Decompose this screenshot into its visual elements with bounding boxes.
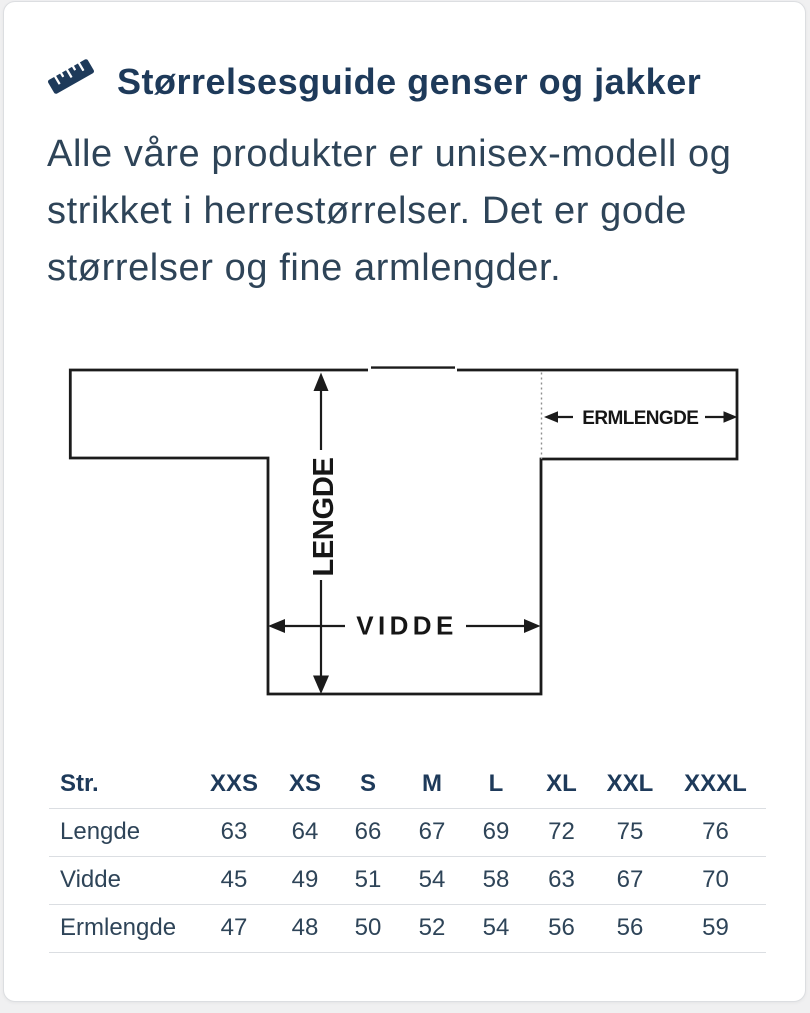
svg-text:VIDDE: VIDDE — [356, 611, 457, 641]
svg-text:LENGDE: LENGDE — [308, 457, 340, 576]
svg-text:ERMLENGDE: ERMLENGDE — [582, 408, 698, 429]
